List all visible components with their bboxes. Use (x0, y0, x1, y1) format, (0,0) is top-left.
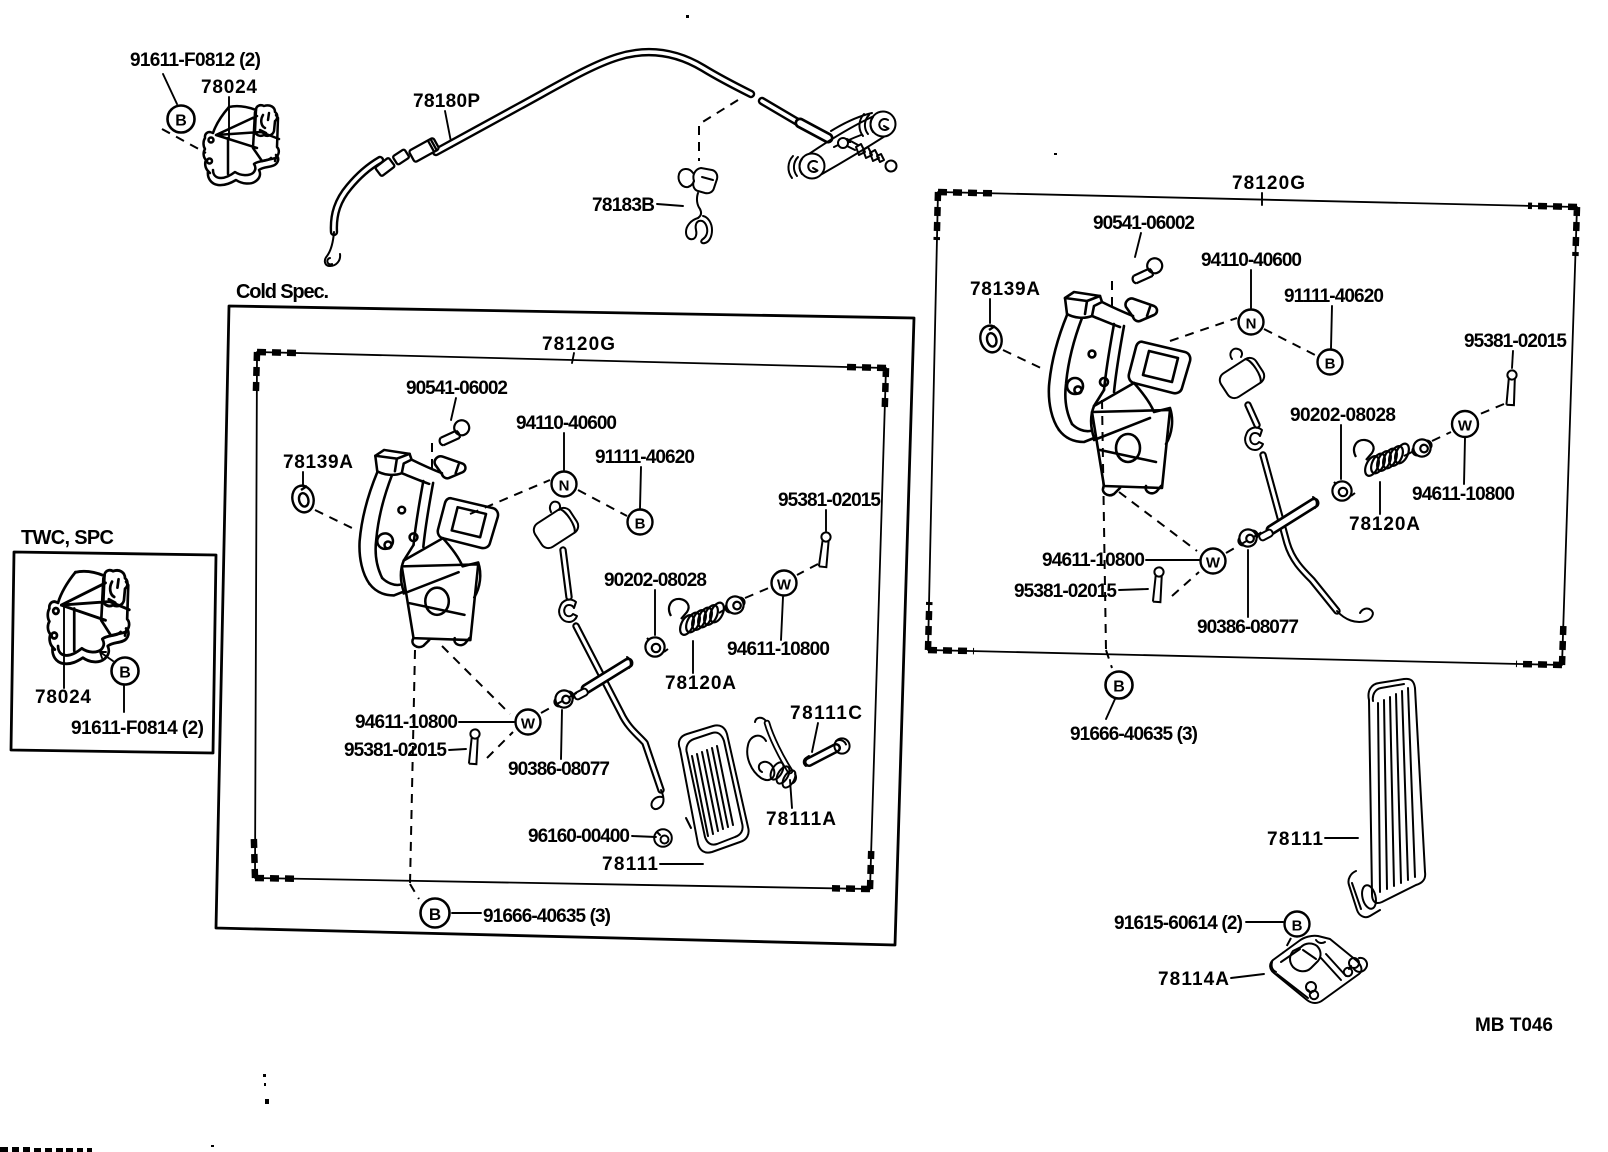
svg-text:90386-08077: 90386-08077 (508, 759, 610, 780)
svg-text:78120G: 78120G (542, 334, 615, 355)
svg-text:W: W (521, 716, 536, 733)
svg-text:W: W (1206, 555, 1221, 572)
svg-text:90541-06002: 90541-06002 (406, 378, 508, 399)
svg-text:91111-40620: 91111-40620 (1284, 286, 1384, 307)
svg-text:90541-06002: 90541-06002 (1093, 213, 1195, 234)
svg-text:78120A: 78120A (1349, 514, 1420, 535)
svg-text:78024: 78024 (35, 687, 91, 708)
svg-text:B: B (1325, 356, 1336, 373)
svg-text:B: B (119, 665, 131, 682)
svg-text:91611-F0812 (2): 91611-F0812 (2) (130, 50, 261, 71)
svg-text:94110-40600: 94110-40600 (1201, 250, 1302, 271)
svg-text:91666-40635 (3): 91666-40635 (3) (483, 906, 611, 927)
svg-text:78120A: 78120A (665, 673, 736, 694)
svg-text:91615-60614 (2): 91615-60614 (2) (1114, 913, 1243, 934)
svg-text:91111-40620: 91111-40620 (595, 447, 695, 468)
svg-text:94611-10800: 94611-10800 (1042, 550, 1145, 571)
svg-text:78111: 78111 (602, 854, 658, 875)
svg-text:78111: 78111 (1267, 829, 1323, 850)
svg-text:78183B: 78183B (592, 195, 655, 216)
svg-text:78114A: 78114A (1158, 969, 1229, 990)
svg-text:95381-02015: 95381-02015 (1464, 331, 1567, 352)
svg-text:78024: 78024 (201, 77, 257, 98)
svg-text:78120G: 78120G (1232, 173, 1305, 194)
svg-text:B: B (1113, 679, 1125, 696)
svg-text:78111A: 78111A (766, 809, 836, 830)
svg-text:78139A: 78139A (970, 279, 1040, 300)
svg-text:MB T046: MB T046 (1475, 1015, 1553, 1036)
svg-text:90202-08028: 90202-08028 (1290, 405, 1396, 426)
svg-text:B: B (429, 905, 441, 924)
svg-text:B: B (175, 113, 187, 130)
svg-text:95381-02015: 95381-02015 (344, 740, 447, 761)
svg-text:94611-10800: 94611-10800 (1412, 484, 1515, 505)
svg-text:78139A: 78139A (283, 452, 353, 473)
svg-text:90202-08028: 90202-08028 (604, 570, 707, 591)
svg-text:TWC, SPC: TWC, SPC (21, 527, 114, 549)
svg-text:W: W (1458, 418, 1473, 435)
svg-text:94611-10800: 94611-10800 (355, 712, 458, 733)
svg-text:91666-40635 (3): 91666-40635 (3) (1070, 724, 1198, 745)
svg-text:95381-02015: 95381-02015 (778, 490, 881, 511)
svg-text:90386-08077: 90386-08077 (1197, 617, 1299, 638)
svg-text:N: N (559, 478, 570, 495)
svg-text:95381-02015: 95381-02015 (1014, 581, 1117, 602)
svg-text:78180P: 78180P (413, 91, 480, 112)
svg-text:94110-40600: 94110-40600 (516, 413, 617, 434)
svg-text:Cold Spec.: Cold Spec. (236, 281, 329, 303)
svg-text:B: B (635, 516, 646, 533)
svg-text:W: W (777, 577, 792, 594)
svg-text:94611-10800: 94611-10800 (727, 639, 830, 660)
svg-text:N: N (1246, 316, 1257, 333)
svg-text:B: B (1292, 918, 1303, 935)
svg-text:96160-00400: 96160-00400 (528, 826, 630, 847)
svg-text:91611-F0814 (2): 91611-F0814 (2) (71, 718, 204, 739)
